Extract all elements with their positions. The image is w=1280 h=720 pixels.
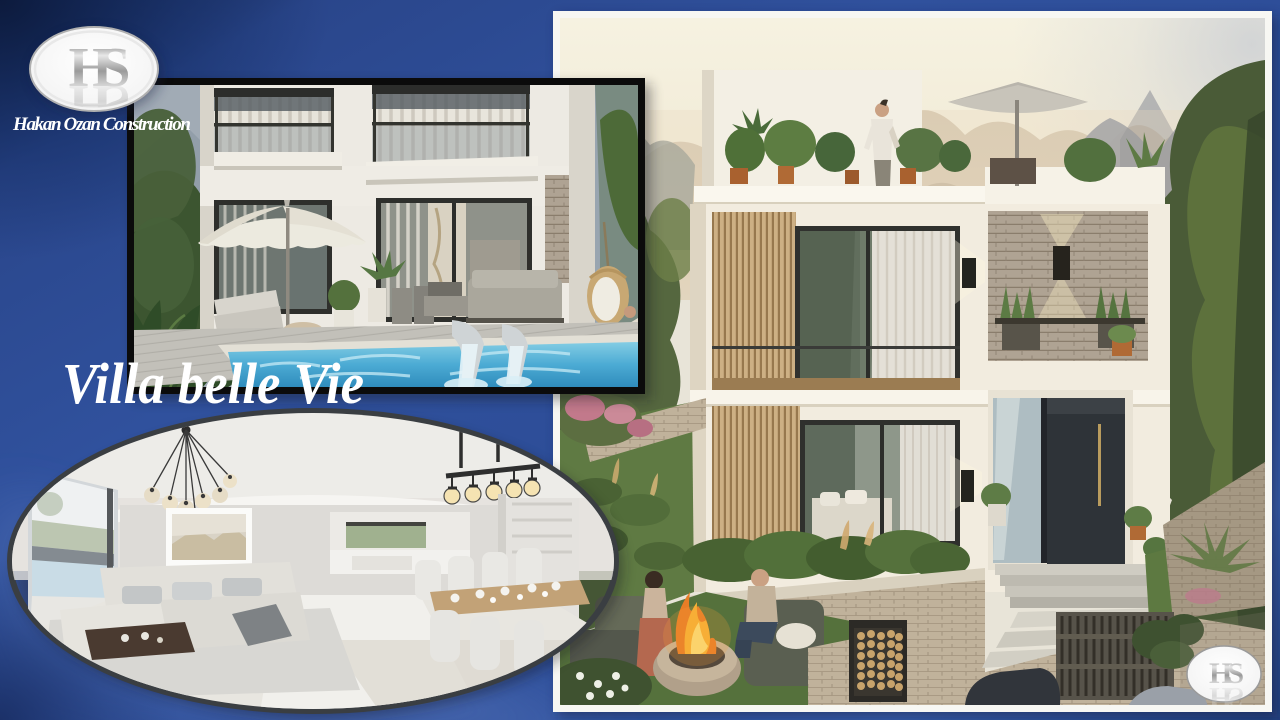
svg-text:Villa belle Vie: Villa belle Vie — [62, 351, 364, 416]
svg-text:Hakan Ozan Construction: Hakan Ozan Construction — [12, 114, 191, 135]
